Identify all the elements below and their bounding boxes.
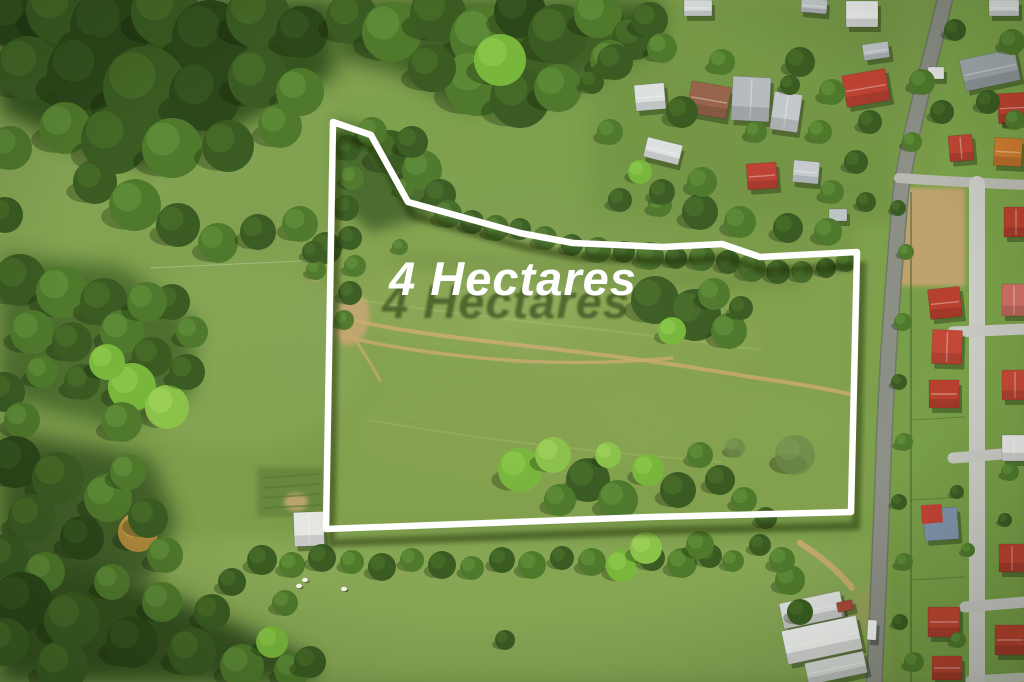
aerial-scene: 4 Hectares 4 Hectares: [0, 0, 1024, 682]
aerial-photo: 4 Hectares 4 Hectares: [0, 0, 1024, 682]
photo-vignette: [0, 0, 1024, 682]
area-label: 4 Hectares: [388, 252, 637, 305]
